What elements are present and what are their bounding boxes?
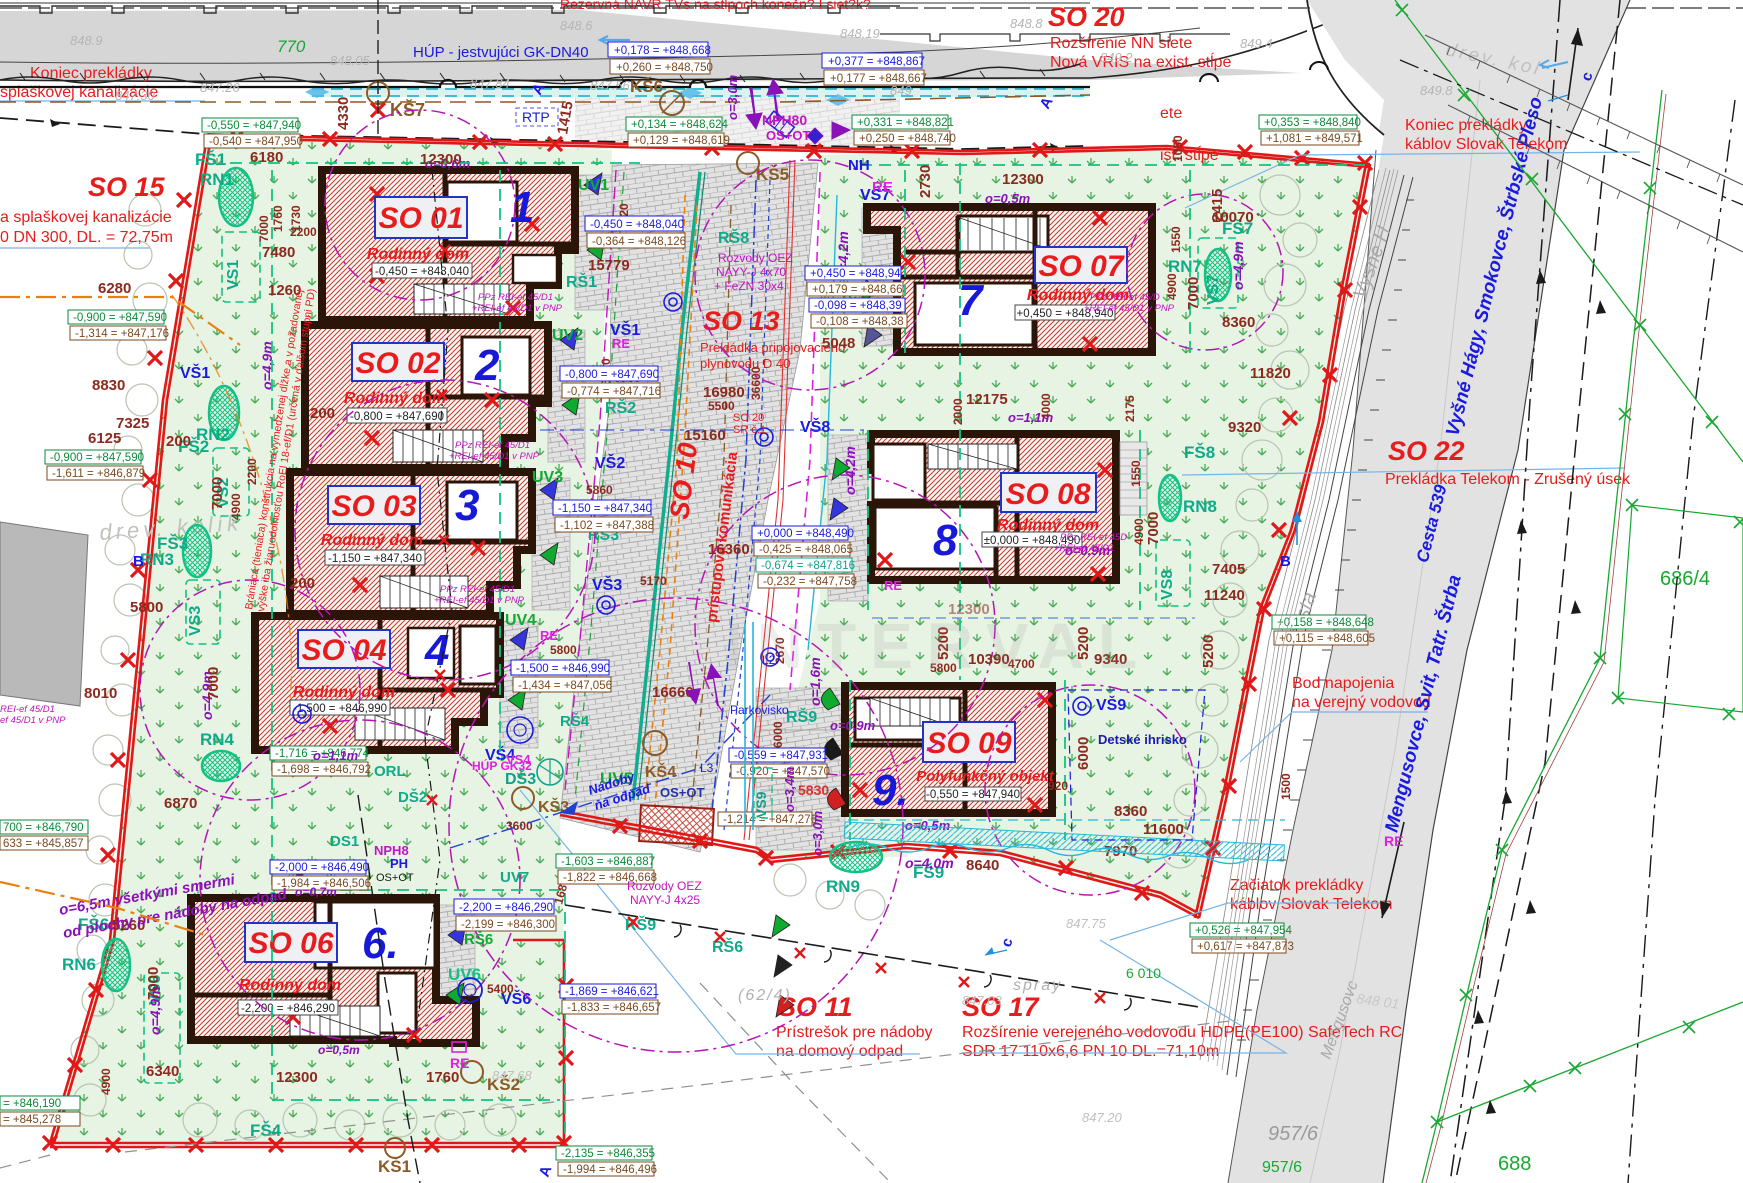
svg-text:920: 920: [1048, 779, 1068, 793]
svg-text:8010: 8010: [84, 685, 117, 702]
svg-text:200: 200: [166, 433, 191, 450]
svg-text:Rodinný dom: Rodinný dom: [367, 246, 469, 263]
svg-text:NAYY-J 4x25: NAYY-J 4x25: [630, 893, 700, 907]
svg-text:UV1: UV1: [578, 177, 609, 194]
svg-text:-1,611 = +846,879: -1,611 = +846,879: [52, 468, 145, 480]
svg-text:7000: 7000: [1145, 512, 1162, 545]
svg-text:SO 08: SO 08: [1005, 478, 1090, 511]
svg-text:na domový odpad: na domový odpad: [776, 1043, 903, 1060]
svg-text:Bod napojenia: Bod napojenia: [1292, 675, 1394, 692]
svg-text:847.68: 847.68: [492, 1068, 533, 1083]
svg-text:SO 09: SO 09: [926, 727, 1011, 760]
svg-text:a splaškovej kanalizácie: a splaškovej kanalizácie: [0, 209, 172, 226]
svg-text:HÚP GK32: HÚP GK32: [472, 758, 532, 773]
svg-text:OS+OT: OS+OT: [660, 785, 704, 800]
svg-text:o=4,2m: o=4,2m: [842, 446, 858, 495]
svg-text:RTP: RTP: [522, 109, 550, 125]
svg-text:Parkovisko: Parkovisko: [730, 703, 789, 717]
svg-text:L3: L3: [700, 761, 714, 775]
svg-text:+0,129 = +848,619: +0,129 = +848,619: [633, 135, 730, 147]
svg-text:200: 200: [310, 405, 335, 422]
svg-text:PPz REI-ef 45/D1: PPz REI-ef 45/D1: [440, 584, 515, 595]
svg-text:848.19: 848.19: [840, 26, 880, 41]
svg-text:1550: 1550: [1169, 226, 1183, 253]
svg-text:-0,559 = +847,931: -0,559 = +847,931: [734, 750, 828, 762]
svg-text:DŠ2: DŠ2: [398, 788, 427, 806]
svg-text:-2,200 = +846,290: -2,200 = +846,290: [459, 902, 553, 914]
svg-text:849.2: 849.2: [1100, 50, 1133, 65]
svg-text:-0,098 = +848,39: -0,098 = +848,39: [814, 300, 902, 312]
svg-text:7000: 7000: [257, 215, 271, 242]
svg-text:633 = +845,857: 633 = +845,857: [3, 838, 84, 850]
svg-text:8360: 8360: [1114, 803, 1147, 820]
svg-text:RN9: RN9: [826, 877, 860, 896]
svg-text:+0,179 = +848,66: +0,179 = +848,66: [812, 284, 903, 296]
svg-text:-0,800 = +847,690: -0,800 = +847,690: [350, 411, 444, 423]
svg-text:VŠ2: VŠ2: [595, 453, 625, 472]
svg-text:Rozvody OEZ: Rozvody OEZ: [718, 251, 793, 265]
svg-text:5170: 5170: [640, 574, 667, 588]
svg-text:o=3,0m: o=3,0m: [810, 810, 825, 856]
svg-text:200: 200: [290, 575, 315, 592]
svg-text:957/6: 957/6: [1268, 1123, 1319, 1145]
svg-text:2200: 2200: [290, 225, 317, 239]
svg-text:849: 849: [890, 83, 912, 98]
svg-text:-2,200 = +846,290: -2,200 = +846,290: [241, 1003, 335, 1015]
svg-text:2: 2: [474, 341, 500, 390]
svg-text:OS+OT: OS+OT: [376, 872, 414, 884]
svg-text:1500: 1500: [1279, 773, 1293, 800]
svg-text:PPz REI-ef 45D: PPz REI-ef 45D: [1060, 532, 1127, 543]
svg-text:12300: 12300: [1002, 171, 1044, 188]
svg-text:(62/4): (62/4): [738, 987, 792, 1004]
svg-text:PPz REI-ef 45/D1: PPz REI-ef 45/D1: [478, 292, 553, 303]
svg-text:VS9: VS9: [753, 791, 769, 818]
svg-text:1550: 1550: [1129, 460, 1143, 487]
svg-text:700 = +846,790: 700 = +846,790: [3, 822, 84, 834]
svg-text:o=0,5m: o=0,5m: [985, 191, 1031, 206]
svg-text:957/6: 957/6: [1262, 1159, 1302, 1176]
svg-text:+0,450 = +848,94: +0,450 = +848,94: [810, 268, 901, 280]
svg-text:3: 3: [455, 481, 479, 530]
svg-text:-0,550 = +847,940: -0,550 = +847,940: [926, 789, 1020, 801]
svg-text:RŠ1: RŠ1: [566, 272, 597, 291]
svg-text:+REI-ef 45/D1 v PNP: +REI-ef 45/D1 v PNP: [449, 451, 540, 462]
svg-text:36600: 36600: [749, 366, 763, 400]
svg-text:o=1,1m: o=1,1m: [313, 748, 359, 763]
svg-text:847.26: 847.26: [200, 80, 241, 95]
svg-text:5800: 5800: [130, 599, 163, 616]
svg-text:PPz REI-ef 45/D1: PPz REI-ef 45/D1: [455, 440, 530, 451]
svg-text:VŠ3: VŠ3: [592, 575, 622, 594]
svg-text:+0,158 = +848,648: +0,158 = +848,648: [1277, 617, 1374, 629]
svg-text:Rodinný dom: Rodinný dom: [344, 390, 446, 407]
svg-text:+0,134 = +848,624: +0,134 = +848,624: [631, 119, 728, 131]
svg-text:SO 15: SO 15: [88, 172, 166, 202]
svg-text:SO 03: SO 03: [331, 490, 416, 523]
svg-text:6 010: 6 010: [1126, 965, 1161, 981]
svg-text:RE: RE: [612, 336, 630, 351]
svg-text:+REI-ef 45/D1 v PNP: +REI-ef 45/D1 v PNP: [1084, 303, 1175, 314]
svg-text:2000: 2000: [951, 398, 965, 425]
svg-text:RN3: RN3: [140, 550, 174, 569]
svg-text:INTERVAL: INTERVAL: [725, 610, 1151, 682]
svg-text:NH: NH: [848, 157, 870, 174]
svg-text:-2,199 = +846,300: -2,199 = +846,300: [461, 919, 555, 931]
svg-text:+0,250 = +848,740: +0,250 = +848,740: [859, 133, 956, 145]
svg-text:UV2: UV2: [552, 327, 583, 344]
svg-text:Detské ihrisko: Detské ihrisko: [1098, 732, 1187, 747]
svg-text:11240: 11240: [1204, 587, 1245, 604]
svg-text:4900: 4900: [99, 1068, 113, 1095]
svg-text:KŠ6: KŠ6: [630, 77, 663, 96]
svg-text:KŠ7: KŠ7: [390, 99, 425, 120]
svg-text:RŠ6: RŠ6: [464, 930, 493, 948]
svg-text:na verejný vodovod: na verejný vodovod: [1292, 694, 1431, 711]
svg-text:VS3: VS3: [187, 606, 204, 636]
svg-text:1050: 1050: [1171, 135, 1185, 162]
svg-text:NAYY-J 4x70: NAYY-J 4x70: [716, 265, 786, 279]
svg-text:RE: RE: [540, 628, 558, 643]
svg-text:-1,314 = +847,176: -1,314 = +847,176: [75, 328, 169, 340]
svg-text:UV7: UV7: [500, 869, 529, 886]
svg-text:ORL: ORL: [374, 763, 406, 780]
svg-text:1760: 1760: [426, 1069, 459, 1086]
svg-text:RN1: RN1: [200, 170, 234, 189]
svg-text:847.20: 847.20: [1082, 1110, 1123, 1125]
svg-text:VŠ1: VŠ1: [180, 363, 210, 382]
svg-text:o=4,9m: o=4,9m: [1230, 241, 1246, 290]
svg-text:o=0,5m: o=0,5m: [318, 1043, 360, 1057]
svg-text:B: B: [133, 553, 144, 570]
svg-text:-0,900 = +847,590: -0,900 = +847,590: [73, 312, 167, 324]
svg-text:9320: 9320: [1228, 419, 1261, 436]
svg-text:ist. stĺpe: ist. stĺpe: [1160, 145, 1219, 164]
svg-text:770: 770: [277, 37, 306, 56]
svg-text:-1,214 = +847,276: -1,214 = +847,276: [723, 814, 817, 826]
svg-text:RN2: RN2: [196, 425, 230, 444]
svg-text:+1,081 = +849,571: +1,081 = +849,571: [1266, 133, 1363, 145]
svg-text:RN8: RN8: [1183, 497, 1217, 516]
svg-text:RE: RE: [872, 179, 893, 196]
svg-text:848.9: 848.9: [70, 33, 103, 48]
svg-text:VŠ9: VŠ9: [1096, 695, 1126, 714]
svg-text:HÚP - jestvujúci GK-DN40: HÚP - jestvujúci GK-DN40: [413, 44, 589, 61]
svg-text:PH: PH: [390, 856, 408, 871]
svg-text:+0,617 = +847,873: +0,617 = +847,873: [1197, 941, 1294, 953]
svg-text:-0,450 = +848,040: -0,450 = +848,040: [590, 219, 684, 231]
svg-text:4330: 4330: [335, 97, 352, 130]
svg-text:SO 20: SO 20: [733, 412, 764, 424]
svg-text:4900: 4900: [229, 493, 243, 520]
svg-text:12300: 12300: [420, 151, 462, 168]
svg-text:REI-ef 45/D1: REI-ef 45/D1: [0, 704, 55, 715]
svg-text:8360: 8360: [1222, 314, 1255, 331]
svg-text:VŠ8: VŠ8: [800, 417, 830, 436]
svg-text:5500: 5500: [708, 399, 735, 413]
svg-text:SO 20: SO 20: [1048, 2, 1125, 32]
svg-text:847.56: 847.56: [590, 78, 631, 93]
svg-text:849.8: 849.8: [1420, 83, 1453, 98]
svg-text:+0,526 = +847,954: +0,526 = +847,954: [1195, 925, 1292, 937]
svg-text:Rozvody OEZ: Rozvody OEZ: [627, 879, 702, 893]
svg-text:+0,177 = +848,667: +0,177 = +848,667: [830, 73, 927, 85]
svg-text:-1,500 = +846,990: -1,500 = +846,990: [516, 663, 610, 675]
svg-text:5400: 5400: [487, 982, 514, 996]
svg-text:-1,698 = +846,792: -1,698 = +846,792: [277, 764, 371, 776]
svg-text:-0,774 = +847,716: -0,774 = +847,716: [567, 386, 661, 398]
svg-text:RŠ2: RŠ2: [605, 398, 636, 417]
svg-text:+REI-ef 45/D1: +REI-ef 45/D1: [1054, 543, 1114, 554]
svg-text:15779: 15779: [588, 257, 630, 274]
svg-text:-1,869 = +846,621: -1,869 = +846,621: [565, 986, 659, 998]
svg-text:UV6: UV6: [448, 965, 481, 984]
svg-text:KŠ1: KŠ1: [378, 1157, 411, 1176]
svg-text:12300: 12300: [276, 1069, 318, 1086]
svg-text:6180: 6180: [250, 149, 283, 166]
svg-text:RN6: RN6: [62, 955, 96, 974]
svg-text:11600: 11600: [1143, 821, 1184, 838]
svg-text:VS7: VS7: [1205, 275, 1222, 305]
svg-text:2175: 2175: [1123, 395, 1137, 422]
svg-text:KŠ4: KŠ4: [645, 762, 676, 781]
svg-text:12175: 12175: [966, 391, 1008, 408]
svg-text:4900: 4900: [1165, 273, 1179, 300]
svg-text:káblov Slovak Telekom: káblov Slovak Telekom: [1405, 136, 1567, 153]
svg-text:5800: 5800: [550, 643, 577, 657]
svg-text:+0,115 = +848,605: +0,115 = +848,605: [1279, 633, 1375, 645]
svg-text:9.: 9.: [872, 766, 909, 815]
svg-text:+0,331 = +848,821: +0,331 = +848,821: [857, 117, 954, 129]
svg-text:7405: 7405: [1212, 561, 1245, 578]
svg-text:688: 688: [1498, 1153, 1531, 1175]
svg-text:ete: ete: [1160, 105, 1182, 122]
svg-text:3600: 3600: [506, 819, 533, 833]
svg-text:-1,150 = +847,340: -1,150 = +847,340: [558, 503, 652, 515]
svg-text:+0,377 = +848,867: +0,377 = +848,867: [828, 56, 925, 68]
svg-text:4000: 4000: [1039, 393, 1053, 420]
svg-text:6870: 6870: [164, 795, 197, 812]
svg-text:-1,102 = +847,388: -1,102 = +847,388: [560, 520, 654, 532]
svg-text:+0,260 = +848,750: +0,260 = +848,750: [616, 62, 713, 74]
svg-text:ef 45/D1 v PNP: ef 45/D1 v PNP: [0, 715, 66, 726]
svg-text:2730: 2730: [917, 165, 934, 198]
svg-text:8: 8: [933, 516, 958, 565]
svg-text:VS1: VS1: [225, 260, 242, 290]
svg-text:-0,550 = +847,940: -0,550 = +847,940: [207, 120, 301, 132]
svg-text:RE: RE: [1384, 833, 1403, 849]
svg-text:= +845,278: = +845,278: [3, 1114, 61, 1126]
svg-text:PPz REI-ef 45/D: PPz REI-ef 45/D: [1090, 292, 1160, 303]
svg-text:-1,994 = +846,496: -1,994 = +846,496: [563, 1164, 657, 1176]
svg-text:Koniec prekládky: Koniec prekládky: [1405, 117, 1527, 134]
svg-text:SO 13: SO 13: [703, 306, 780, 336]
svg-text:RN7: RN7: [1168, 257, 1202, 276]
svg-text:847.84: 847.84: [470, 76, 510, 91]
svg-text:káblov Slovak Telekom: káblov Slovak Telekom: [1230, 896, 1392, 913]
svg-text:+REI-ef 45/D1 v PNP: +REI-ef 45/D1 v PNP: [434, 595, 525, 606]
svg-text:848.8: 848.8: [1010, 16, 1043, 31]
svg-text:+REI-ef 45/D1 v PNP: +REI-ef 45/D1 v PNP: [472, 303, 563, 314]
svg-text:plynovodu D 40: plynovodu D 40: [700, 356, 790, 371]
svg-text:RŠ9: RŠ9: [786, 707, 817, 726]
svg-text:1760: 1760: [271, 205, 285, 232]
svg-text:8640: 8640: [966, 857, 999, 874]
svg-text:-1,434 = +847,056: -1,434 = +847,056: [518, 680, 612, 692]
svg-text:848.05: 848.05: [330, 53, 371, 68]
svg-text:7000: 7000: [145, 967, 162, 1000]
svg-text:Rodinný dom: Rodinný dom: [239, 977, 341, 994]
svg-text:Prístrešok pre nádoby: Prístrešok pre nádoby: [776, 1024, 933, 1041]
svg-text:11820: 11820: [1250, 365, 1291, 382]
svg-text:UV4: UV4: [505, 612, 536, 629]
svg-text:7000: 7000: [209, 477, 226, 510]
svg-text:0 DN 300, DL. = 72,75m: 0 DN 300, DL. = 72,75m: [0, 229, 173, 246]
svg-text:-0,900 = +847,590: -0,900 = +847,590: [50, 452, 144, 464]
svg-text:Začiatok prekládky: Začiatok prekládky: [1230, 877, 1363, 894]
svg-text:16360: 16360: [708, 541, 750, 558]
svg-text:VS8: VS8: [1159, 570, 1176, 600]
svg-text:o=3,4m: o=3,4m: [782, 766, 797, 812]
svg-text:DS1: DS1: [330, 833, 359, 850]
svg-text:5200: 5200: [1200, 635, 1217, 668]
svg-text:6125: 6125: [88, 430, 121, 447]
svg-text:RN4: RN4: [200, 730, 235, 749]
svg-text:5830: 5830: [798, 782, 829, 798]
svg-text:SO 07: SO 07: [1038, 250, 1124, 283]
svg-text:UV3: UV3: [532, 469, 563, 486]
svg-text:-0,232 = +847,758: -0,232 = +847,758: [763, 576, 857, 588]
svg-text:6000: 6000: [1075, 737, 1092, 770]
svg-text:847.03: 847.03: [962, 993, 1003, 1008]
svg-text:B: B: [1280, 553, 1291, 570]
svg-text:+ FeZN 30x4: + FeZN 30x4: [714, 279, 784, 293]
svg-text:o=3,0m: o=3,0m: [725, 74, 740, 120]
svg-text:+0,178 = +848,668: +0,178 = +848,668: [614, 45, 711, 57]
svg-text:6340: 6340: [146, 1063, 179, 1080]
svg-text:RE: RE: [884, 578, 902, 593]
svg-text:SO 22: SO 22: [1388, 436, 1465, 466]
svg-text:8830: 8830: [92, 377, 125, 394]
svg-text:847.75: 847.75: [1066, 916, 1107, 931]
svg-text:-2,135 = +846,355: -2,135 = +846,355: [561, 1148, 655, 1160]
svg-text:+0,353 = +848,840: +0,353 = +848,840: [1264, 117, 1361, 129]
svg-text:-0,450 = +848,040: -0,450 = +848,040: [375, 266, 469, 278]
svg-text:Prekládka Telekom - Zrušený ús: Prekládka Telekom - Zrušený úsek: [1385, 471, 1631, 488]
svg-text:+0,000 = +848,490: +0,000 = +848,490: [757, 528, 854, 540]
svg-text:-0,674 = +847,816: -0,674 = +847,816: [761, 560, 855, 572]
svg-text:-0,425 = +848,065: -0,425 = +848,065: [759, 544, 853, 556]
svg-text:-2,000 = +846,490: -2,000 = +846,490: [275, 862, 369, 874]
svg-text:849.4: 849.4: [1240, 36, 1273, 51]
svg-text:RŠ4: RŠ4: [560, 712, 590, 730]
svg-text:RŠ8: RŠ8: [718, 228, 749, 247]
svg-text:847.30: 847.30: [115, 88, 156, 103]
svg-text:-0,800 = +847,690: -0,800 = +847,690: [565, 369, 659, 381]
svg-text:Rodinný dom: Rodinný dom: [293, 684, 395, 701]
svg-text:7480: 7480: [262, 244, 295, 261]
svg-text:SDR 17 110x6,6 PN 10 DL.=71,10: SDR 17 110x6,6 PN 10 DL.=71,10m: [962, 1043, 1219, 1060]
svg-text:NPH80: NPH80: [762, 112, 807, 128]
svg-text:6280: 6280: [98, 280, 131, 297]
svg-text:Koniec prekládky: Koniec prekládky: [30, 65, 152, 82]
svg-text:5048: 5048: [822, 335, 855, 352]
svg-text:-1,150 = +847,340: -1,150 = +847,340: [328, 553, 422, 565]
svg-text:6000: 6000: [771, 721, 785, 748]
svg-text:KŠ5: KŠ5: [756, 165, 789, 184]
svg-text:SO 06: SO 06: [248, 927, 333, 960]
svg-text:o=0,7m: o=0,7m: [295, 885, 337, 899]
svg-text:= +846,190: = +846,190: [3, 1098, 61, 1110]
svg-text:686/4: 686/4: [1660, 568, 1710, 590]
svg-text:RE: RE: [450, 1055, 469, 1071]
svg-text:SO 01: SO 01: [378, 202, 463, 235]
svg-text:Rodinný dom: Rodinný dom: [321, 532, 423, 549]
svg-text:o=4,0m: o=4,0m: [905, 855, 954, 871]
svg-text:7000: 7000: [1185, 277, 1202, 310]
svg-text:848.6: 848.6: [560, 18, 593, 33]
svg-text:FŠ1: FŠ1: [195, 150, 226, 169]
svg-text:-1,603 = +846,887: -1,603 = +846,887: [561, 856, 655, 868]
svg-text:-1,500 = +846,990: -1,500 = +846,990: [293, 703, 387, 715]
svg-text:-0,364 = +848,126: -0,364 = +848,126: [592, 236, 686, 248]
svg-text:-1,833 = +846,657: -1,833 = +846,657: [567, 1002, 661, 1014]
svg-text:7000: 7000: [205, 667, 222, 700]
svg-text:OS+OT: OS+OT: [766, 128, 810, 143]
svg-text:SO 02: SO 02: [355, 347, 440, 380]
svg-text:Nová VRIS na exist. stĺpe: Nová VRIS na exist. stĺpe: [1050, 52, 1232, 71]
svg-text:4: 4: [424, 626, 449, 675]
svg-text:-0,108 = +848,38: -0,108 = +848,38: [816, 316, 904, 328]
svg-text:spray: spray: [1013, 977, 1062, 994]
svg-text:-0,540 = +847,950: -0,540 = +847,950: [209, 136, 303, 148]
svg-text:4900: 4900: [1132, 518, 1146, 545]
svg-text:7: 7: [958, 276, 985, 325]
svg-text:5860: 5860: [586, 483, 613, 497]
svg-text:10070: 10070: [1212, 209, 1254, 226]
svg-text:o=0,9m: o=0,9m: [830, 718, 876, 733]
svg-text:FŠ8: FŠ8: [1184, 443, 1215, 462]
